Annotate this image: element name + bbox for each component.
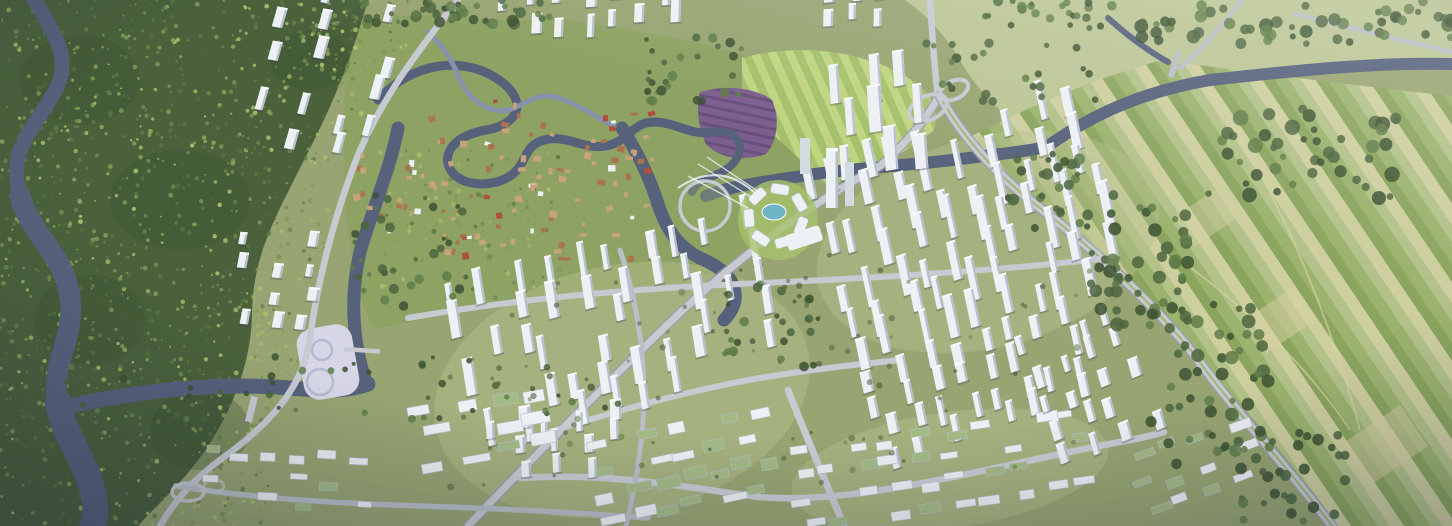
screenshot-root [0,0,1452,526]
photo-vignette-overlay [0,0,1452,526]
city-masterplan-render [0,0,1452,526]
